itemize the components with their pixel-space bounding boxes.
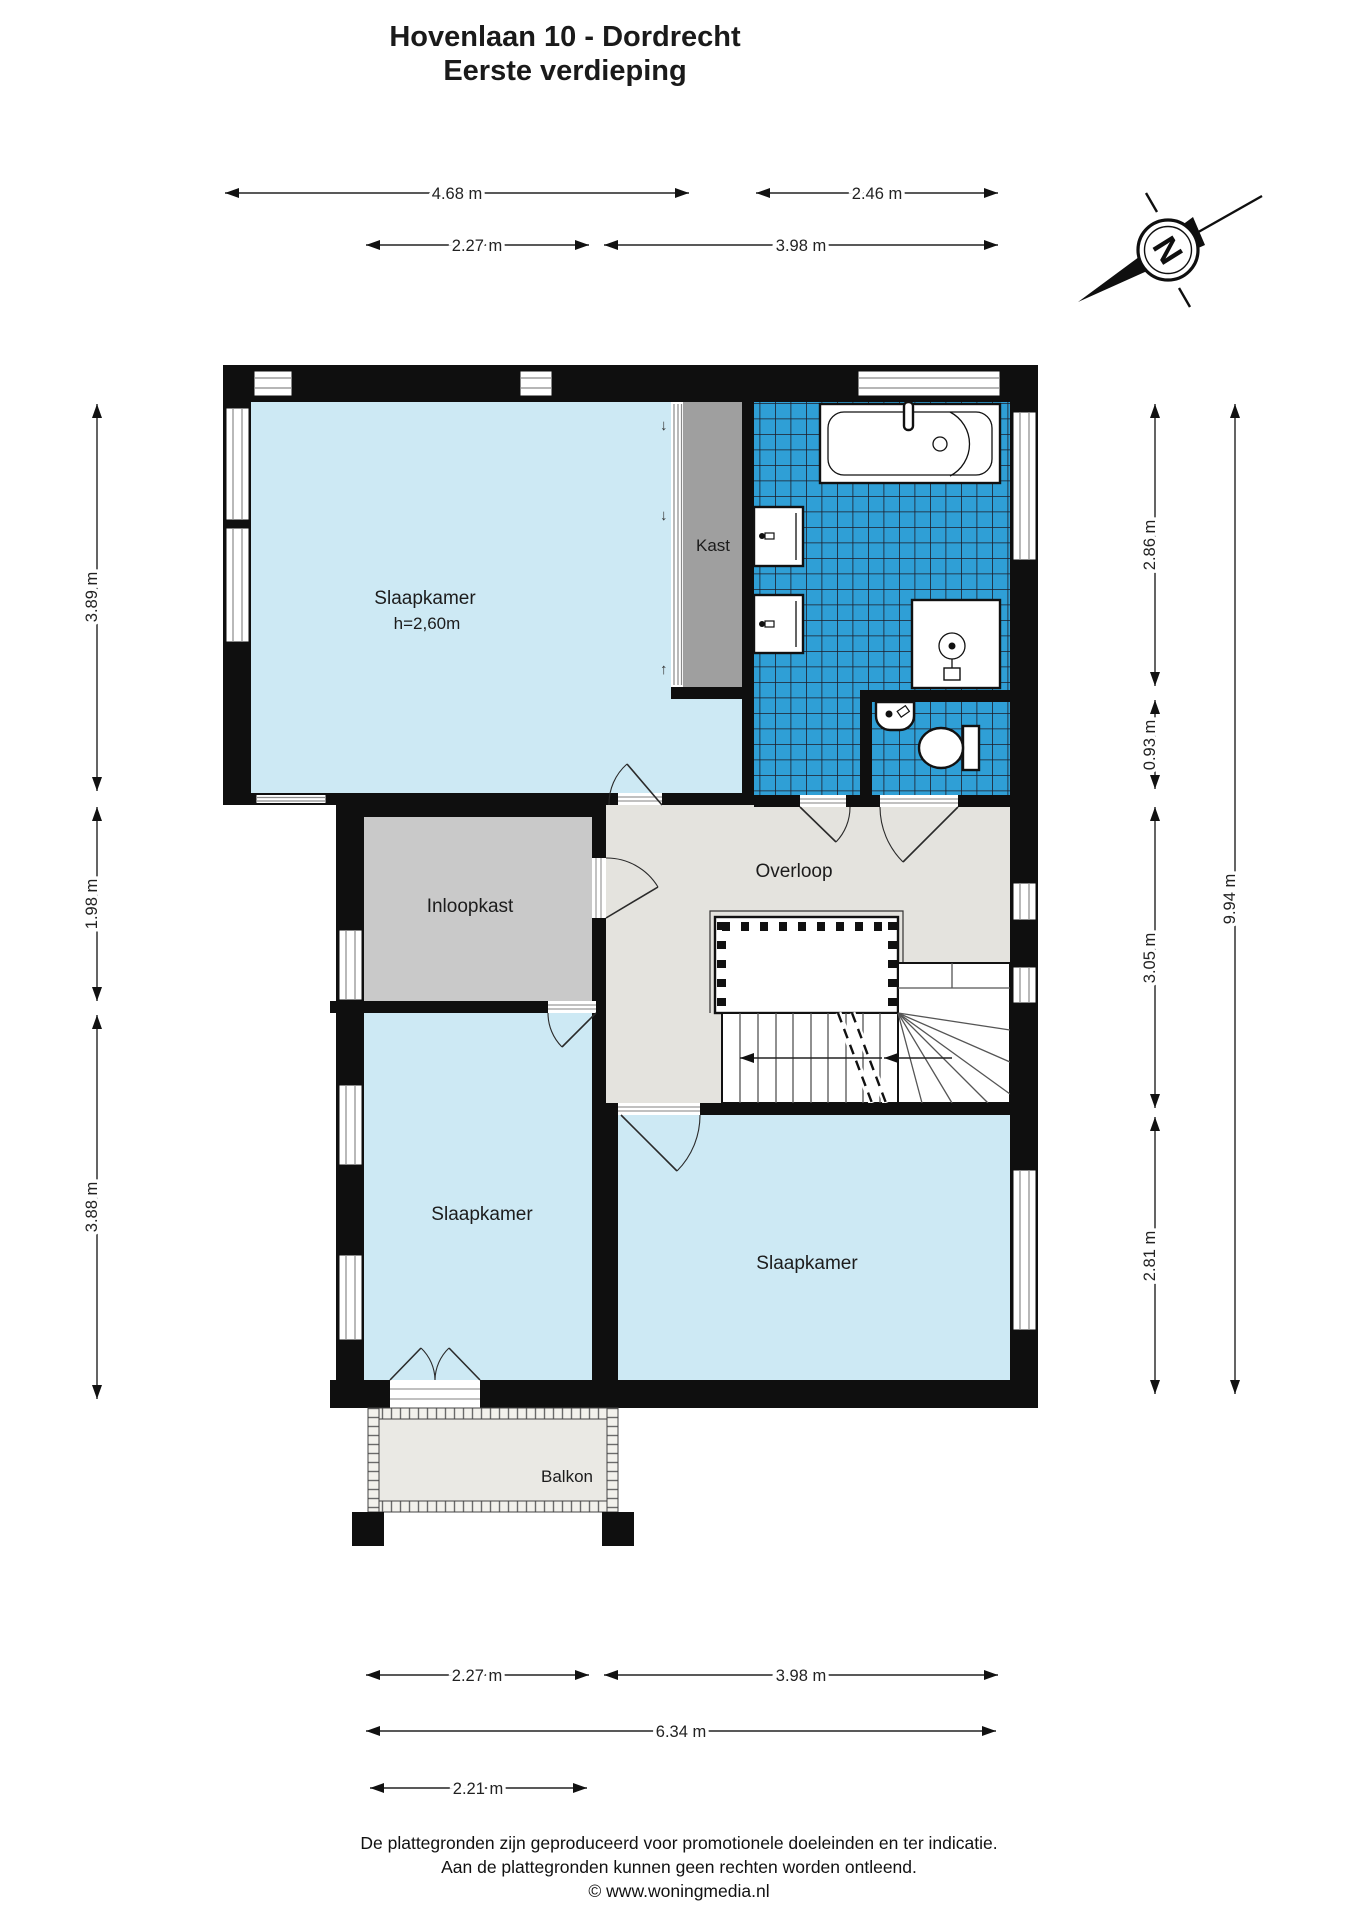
- window: [254, 371, 292, 396]
- window: [1013, 412, 1036, 560]
- toilet-north-wall: [860, 690, 1010, 702]
- dim-left-bottom: 3.88 m: [83, 1182, 101, 1232]
- dim-top-row2-right: 3.98 m: [776, 237, 826, 255]
- room-fills: [251, 402, 1010, 1380]
- dim-right-section2: 0.93 m: [1141, 720, 1159, 770]
- bedroom1-height-note: h=2,60m: [394, 614, 461, 633]
- window: [226, 408, 249, 520]
- dim-top-row1-right: 2.46 m: [852, 185, 902, 203]
- shower-icon: [912, 600, 1000, 688]
- bathtub-icon: [820, 402, 1000, 483]
- overloop-floor-3: [606, 1013, 722, 1103]
- overloop-floor-4: [898, 917, 1010, 963]
- floor-plan-page: Hovenlaan 10 - Dordrecht Eerste verdiepi…: [0, 0, 1358, 1920]
- bedroom1-label: Slaapkamer: [374, 588, 476, 609]
- bedroom3-floor: [618, 1115, 1010, 1380]
- floor-plan-canvas: Hovenlaan 10 - Dordrecht Eerste verdiepi…: [0, 0, 1358, 1920]
- footer-disclaimer: De plattegronden zijn geproduceerd voor …: [360, 1833, 997, 1901]
- kast-south-wall: [671, 687, 754, 699]
- balkon-railing-right: [607, 1408, 618, 1512]
- window: [339, 930, 362, 1000]
- stairwell-void: [715, 917, 898, 1013]
- dim-bottom-total: 6.34 m: [656, 1723, 706, 1741]
- bedroom2-east-wall: [592, 1013, 606, 1380]
- inloopkast-label: Inloopkast: [427, 896, 514, 917]
- page-subtitle: Eerste verdieping: [443, 55, 686, 87]
- down-arrow-icon: ↓: [660, 507, 668, 524]
- window: [1013, 1170, 1036, 1330]
- balkon-label: Balkon: [541, 1467, 593, 1486]
- balkon-post: [352, 1512, 384, 1546]
- bathroom-west-wall: [742, 402, 754, 805]
- window: [1013, 967, 1036, 1003]
- dim-top-row2-left: 2.27 m: [452, 237, 502, 255]
- page-title: Hovenlaan 10 - Dordrecht: [389, 21, 741, 53]
- window: [226, 528, 249, 642]
- bedroom2-label: Slaapkamer: [431, 1204, 533, 1225]
- dim-bottom-row1-left: 2.27 m: [452, 1667, 502, 1685]
- window: [256, 795, 326, 804]
- dim-bottom-balcony: 2.21 m: [453, 1780, 503, 1798]
- window: [1013, 883, 1036, 920]
- balkon-floor: [368, 1408, 618, 1512]
- kast-label: Kast: [696, 536, 730, 555]
- bathroom-passage-floor: [754, 690, 860, 795]
- footer-line-2: Aan de plattegronden kunnen geen rechten…: [441, 1857, 917, 1877]
- footer-copyright: © www.woningmedia.nl: [588, 1881, 769, 1901]
- washbasin-icon: [754, 595, 803, 653]
- toilet-icon: [919, 726, 979, 770]
- bedroom3-label: Slaapkamer: [756, 1253, 858, 1274]
- bedroom2-floor: [364, 1013, 592, 1380]
- dim-top-row1-left: 4.68 m: [432, 185, 482, 203]
- washbasin-icon: [754, 507, 803, 566]
- balkon-railing-bottom: [368, 1501, 618, 1512]
- dim-right-total: 9.94 m: [1221, 874, 1239, 924]
- dim-right-section4: 2.81 m: [1141, 1231, 1159, 1281]
- corner-sink-icon: [876, 702, 914, 730]
- dim-left-top: 3.89 m: [83, 572, 101, 622]
- dim-right-section3: 3.05 m: [1141, 933, 1159, 983]
- overloop-label: Overloop: [755, 861, 832, 882]
- footer-line-1: De plattegronden zijn geproduceerd voor …: [360, 1833, 997, 1853]
- window: [858, 371, 1000, 396]
- dim-right-section1: 2.86 m: [1141, 520, 1159, 570]
- bedroom1-floor-extension: [671, 699, 742, 793]
- balkon-post-right: [602, 1512, 634, 1546]
- window: [520, 371, 552, 396]
- balkon-railing-left: [368, 1408, 379, 1512]
- bedroom3-west-wall: [606, 1115, 618, 1380]
- window: [339, 1085, 362, 1165]
- dim-left-middle: 1.98 m: [83, 879, 101, 929]
- window: [339, 1255, 362, 1340]
- down-arrow-icon: ↓: [660, 417, 668, 434]
- compass-rose: N: [1078, 193, 1262, 307]
- up-arrow-icon: ↑: [660, 661, 668, 678]
- inloopkast-north-wall: [336, 805, 606, 817]
- toilet-west-wall: [860, 690, 872, 807]
- dim-bottom-row1-right: 3.98 m: [776, 1667, 826, 1685]
- balkon-railing: [368, 1408, 618, 1419]
- overloop-floor-2: [606, 917, 715, 1013]
